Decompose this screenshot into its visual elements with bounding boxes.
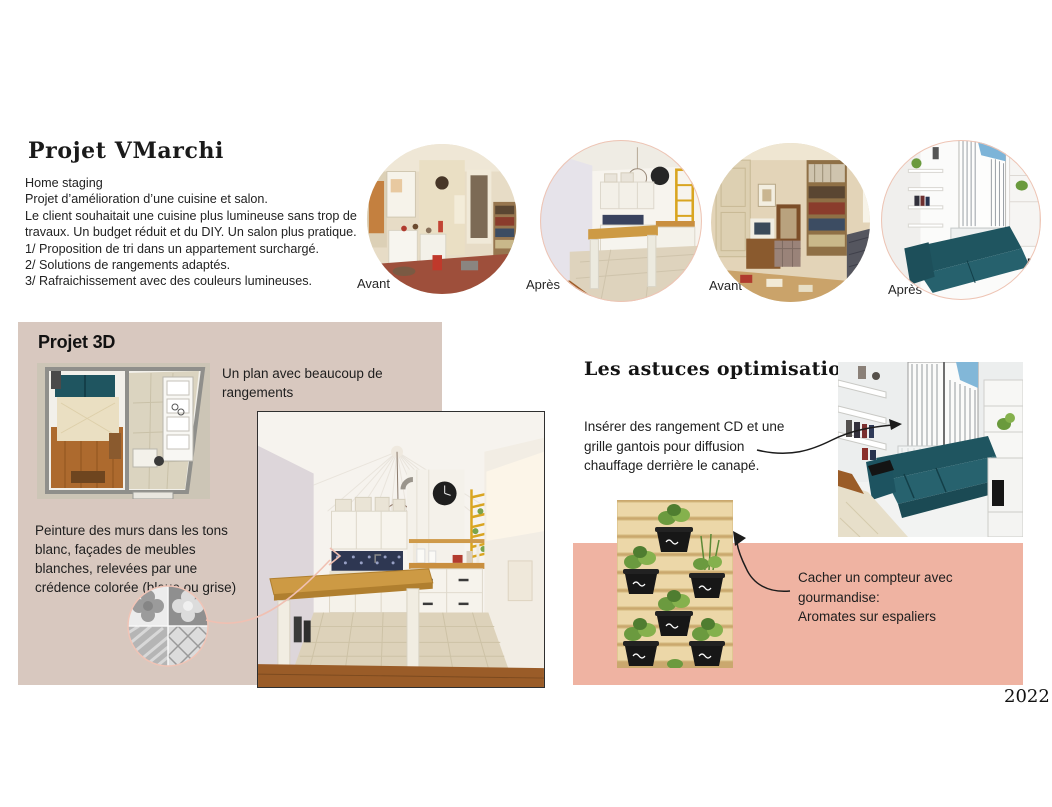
herb-wall-image bbox=[617, 500, 733, 668]
compteur-caption: Cacher un compteur avec gourmandise: Aro… bbox=[798, 568, 1008, 627]
intro-line: Home staging bbox=[25, 175, 357, 191]
kitchen-after-photo bbox=[539, 139, 703, 303]
floor-plan-image bbox=[37, 363, 210, 499]
year-label: 2022 bbox=[1004, 686, 1050, 707]
intro-line: 2/ Solutions de rangements adaptés. bbox=[25, 257, 357, 273]
plan-caption: Un plan avec beaucoup de rangements bbox=[222, 364, 397, 402]
astuces-title: Les astuces optimisation bbox=[584, 358, 855, 380]
kitchen-before-photo bbox=[366, 143, 518, 295]
intro-text: Home staging Projet d’amélioration d’une… bbox=[25, 175, 357, 290]
living-room-after-render bbox=[880, 139, 1042, 301]
before-label-kitchen: Avant bbox=[357, 276, 390, 291]
slide: Projet VMarchi Home staging Projet d’amé… bbox=[0, 0, 1052, 807]
kitchen-render-image bbox=[257, 411, 545, 688]
intro-line: 1/ Proposition de tri dans un appartemen… bbox=[25, 241, 357, 257]
intro-line: travaux. Un budget réduit et du DIY. Un … bbox=[25, 224, 357, 240]
page-title: Projet VMarchi bbox=[28, 138, 224, 164]
intro-line: Le client souhaitait une cuisine plus lu… bbox=[25, 208, 357, 224]
tile-swatch-image bbox=[127, 585, 209, 667]
projet-3d-title: Projet 3D bbox=[38, 332, 115, 353]
after-label-kitchen: Après bbox=[526, 277, 560, 292]
intro-line: Projet d’amélioration d’une cuisine et s… bbox=[25, 191, 357, 207]
living-room-before-photo bbox=[710, 142, 871, 303]
intro-line: 3/ Rafraichissement avec des couleurs lu… bbox=[25, 273, 357, 289]
sofa-render-image bbox=[838, 362, 1023, 537]
cd-caption: Insérer des rangement CD et une grille g… bbox=[584, 417, 814, 476]
